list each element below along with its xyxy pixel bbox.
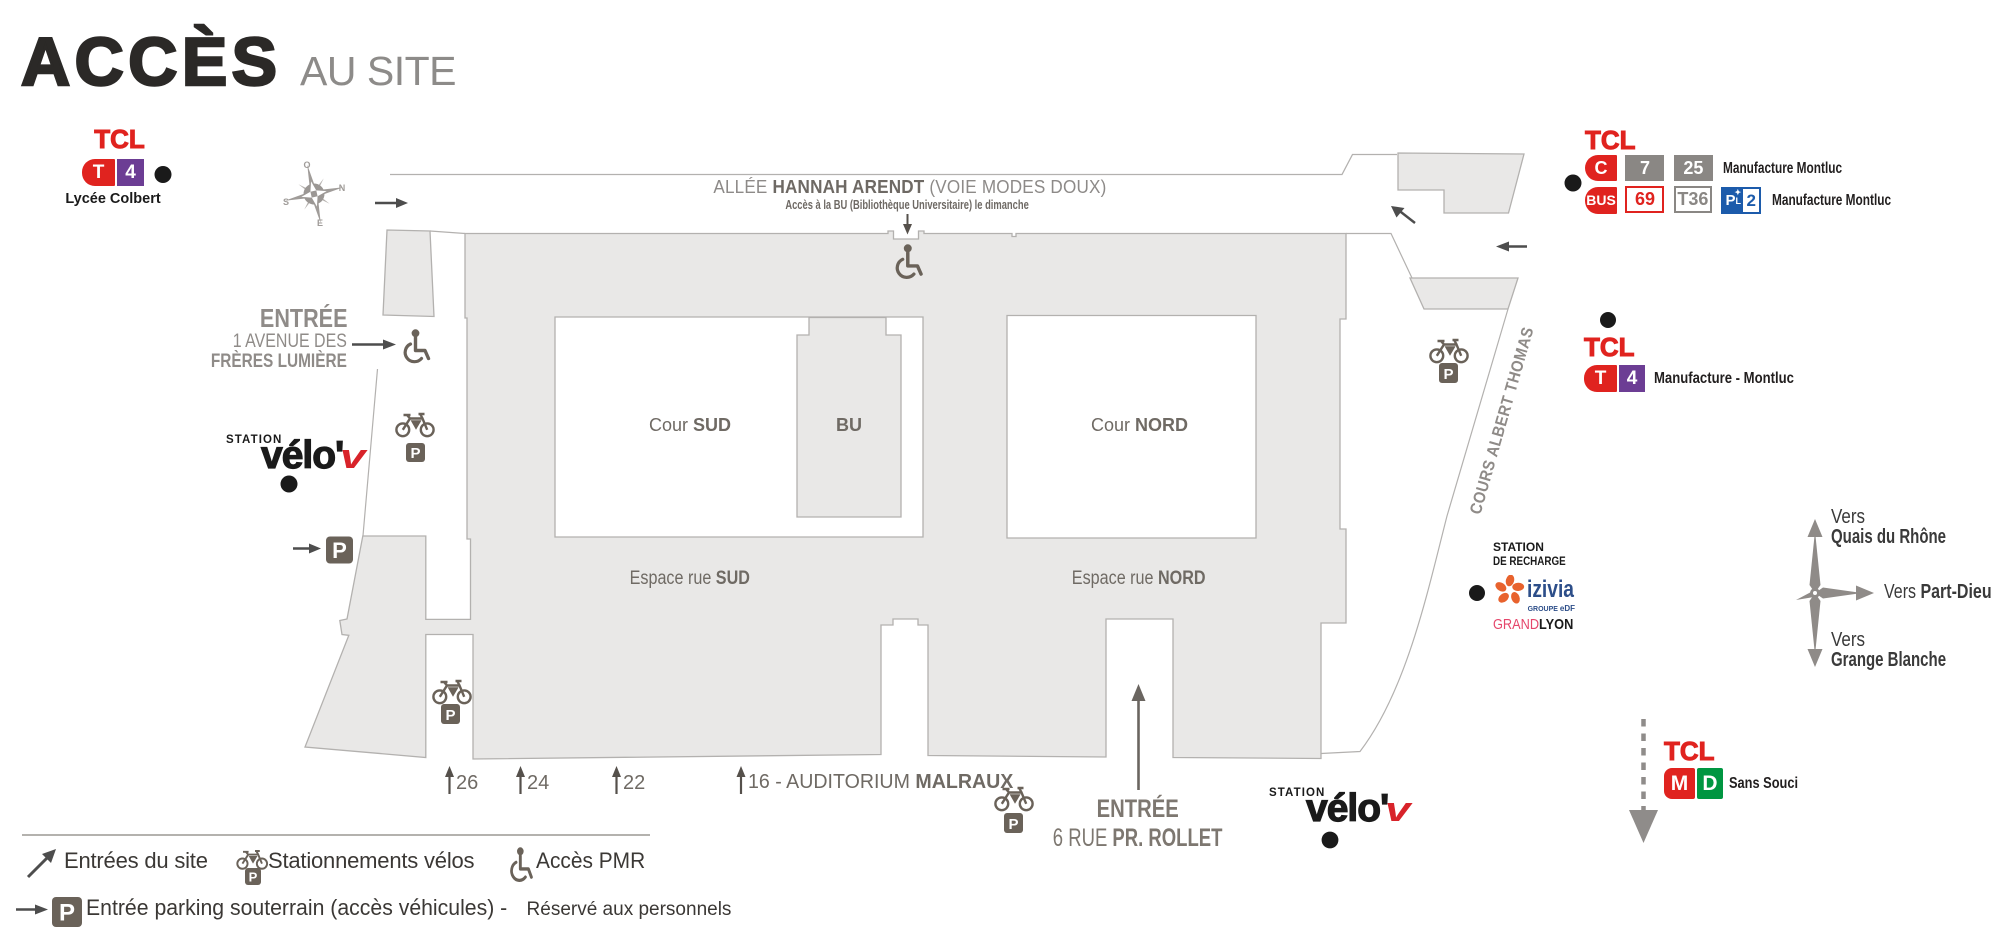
svg-text:P: P bbox=[59, 900, 75, 927]
svg-text:P: P bbox=[332, 538, 347, 563]
svg-text:O: O bbox=[303, 160, 310, 170]
svg-text:S: S bbox=[283, 197, 289, 207]
svg-text:COURS ALBERT THOMAS: COURS ALBERT THOMAS bbox=[1467, 325, 1538, 516]
svg-text:P: P bbox=[445, 707, 455, 724]
svg-text:E: E bbox=[317, 218, 323, 228]
svg-text:P: P bbox=[1443, 366, 1453, 383]
svg-text:P: P bbox=[410, 445, 420, 462]
svg-text:N: N bbox=[339, 183, 346, 193]
svg-text:P: P bbox=[249, 870, 258, 885]
